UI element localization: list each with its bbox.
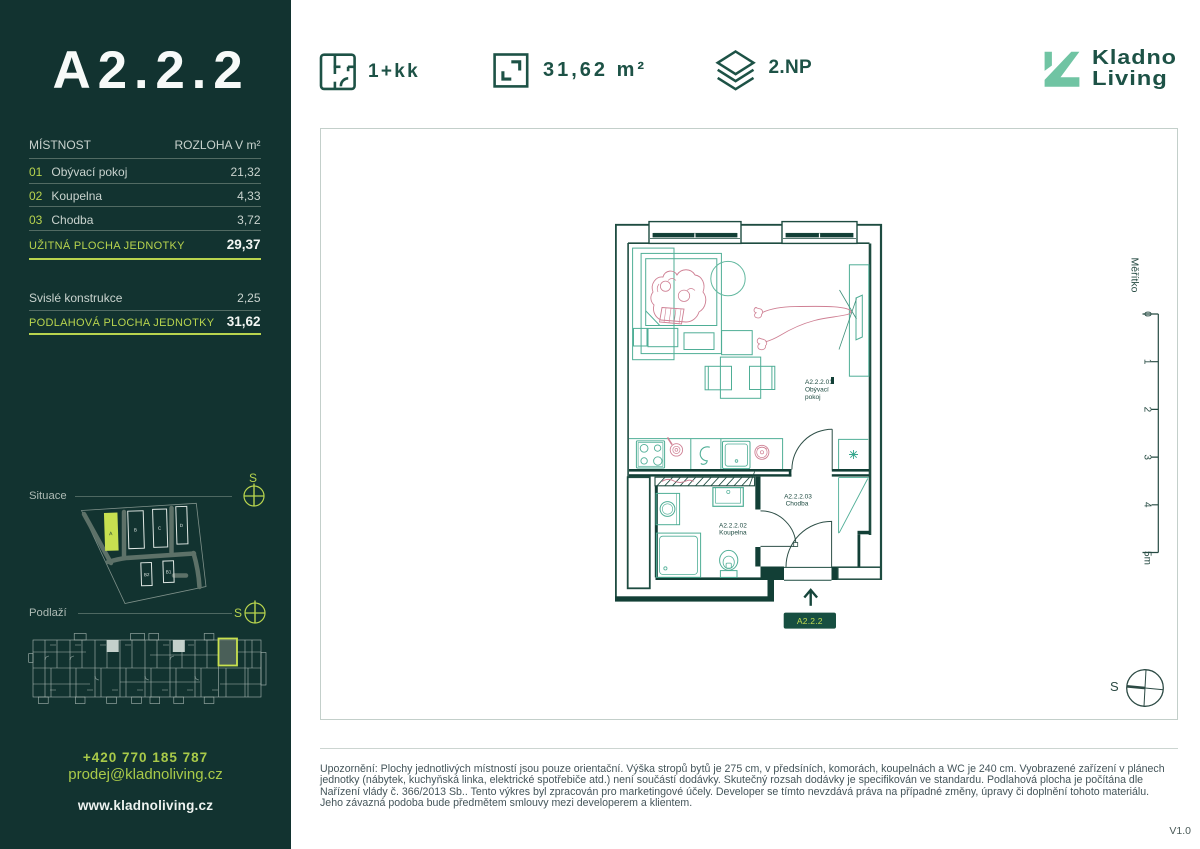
- svg-text:3: 3: [1141, 454, 1152, 460]
- svg-text:Měřítko: Měřítko: [1129, 258, 1141, 293]
- svg-text:S: S: [234, 606, 242, 620]
- svg-text:B1: B1: [166, 569, 172, 574]
- svg-text:0: 0: [1141, 311, 1152, 317]
- svg-text:1: 1: [1141, 359, 1152, 365]
- svg-text:2: 2: [1141, 407, 1152, 413]
- svg-text:B2: B2: [144, 572, 150, 577]
- svg-text:Obývací: Obývací: [805, 386, 829, 393]
- svg-text:A2.2.2.03: A2.2.2.03: [784, 494, 812, 501]
- svg-text:Chodba: Chodba: [786, 501, 809, 508]
- svg-text:D: D: [180, 523, 184, 528]
- svg-text:Koupelna: Koupelna: [719, 530, 747, 537]
- svg-text:S: S: [1110, 679, 1119, 694]
- svg-text:A2.2.2: A2.2.2: [797, 616, 823, 626]
- svg-text:5m: 5m: [1141, 551, 1152, 565]
- svg-text:4: 4: [1141, 502, 1152, 508]
- svg-text:pokoj: pokoj: [805, 394, 821, 401]
- svg-text:C: C: [158, 526, 162, 531]
- svg-text:A2.2.2.01: A2.2.2.01: [805, 379, 833, 386]
- svg-text:B: B: [134, 527, 137, 532]
